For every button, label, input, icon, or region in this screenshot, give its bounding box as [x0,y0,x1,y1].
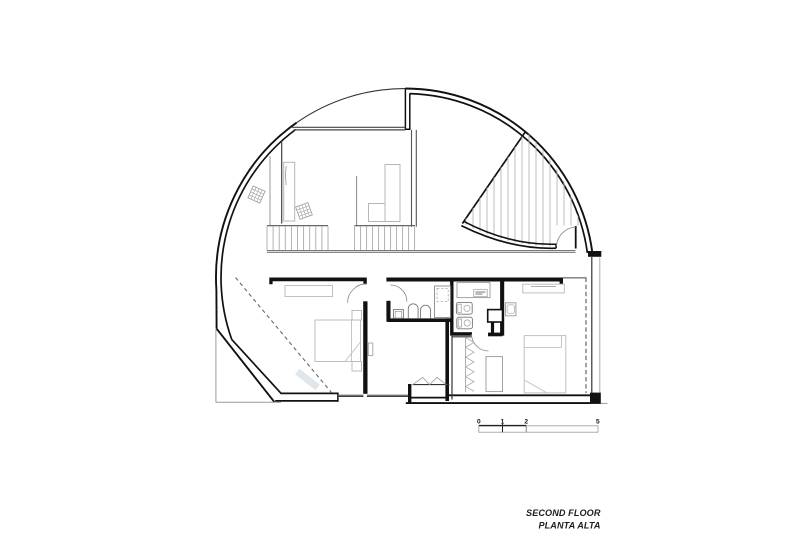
svg-text:SECOND FLOOR: SECOND FLOOR [526,508,601,518]
svg-text:5: 5 [596,418,600,425]
svg-text:1: 1 [501,418,505,425]
svg-text:2: 2 [524,418,528,425]
svg-text:PLANTA ALTA: PLANTA ALTA [538,521,600,531]
svg-text:0: 0 [477,418,481,425]
